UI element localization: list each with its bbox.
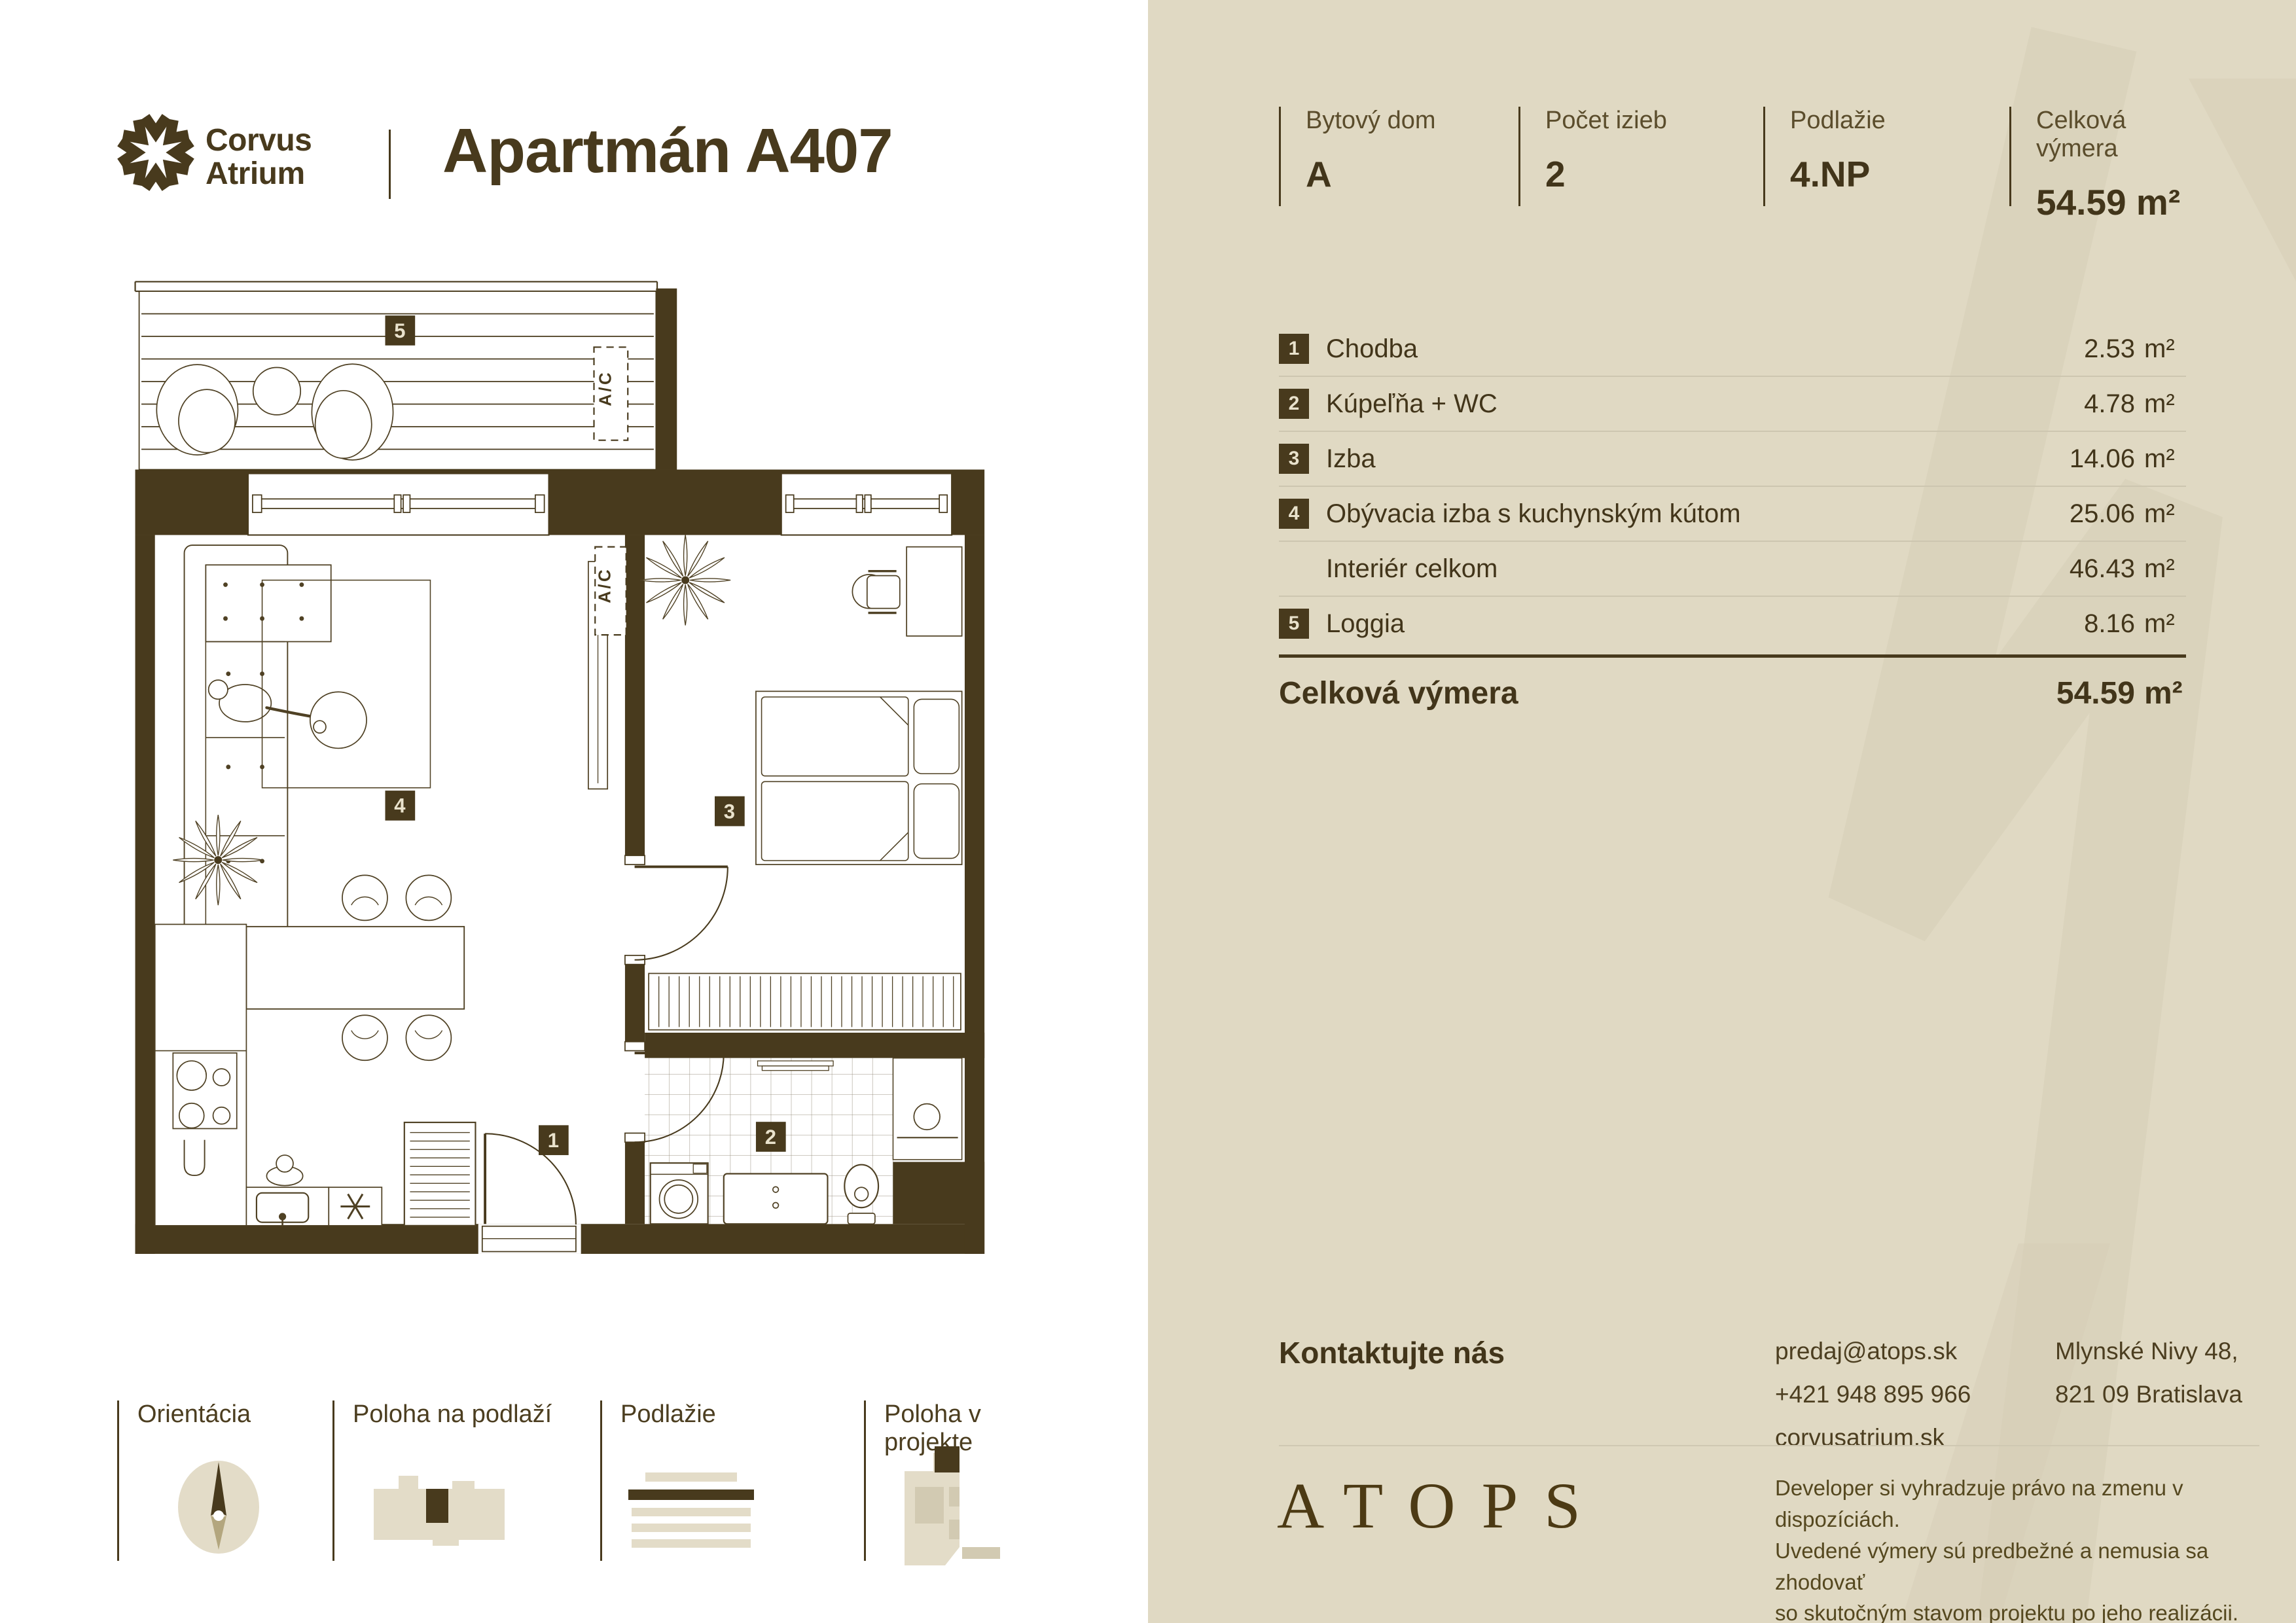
contact-website: corvusatrium.sk — [1775, 1416, 1971, 1459]
disclaimer-line: so skutočným stavom projektu po jeho rea… — [1775, 1597, 2272, 1623]
total-unit: m² — [2144, 675, 2186, 711]
contact-details: predaj@atops.sk +421 948 895 966 corvusa… — [1775, 1330, 1971, 1459]
badge-number: 1 — [548, 1129, 559, 1152]
badge-number: 3 — [724, 800, 735, 823]
contact-phone: +421 948 895 966 — [1775, 1373, 1971, 1416]
floor-plan: A/C — [121, 262, 1001, 1283]
vanity-cabinet — [724, 1174, 828, 1224]
compass-icon — [171, 1452, 266, 1556]
shaft — [893, 1162, 984, 1224]
room-unit: m² — [2144, 609, 2186, 639]
disclaimer-line: Developer si vyhradzuje právo na zmenu v… — [1775, 1472, 2272, 1535]
summary-floor: Podlažie 4.NP — [1763, 107, 2009, 206]
room-unit: m² — [2144, 444, 2186, 474]
total-label: Celková výmera — [1279, 675, 1518, 711]
table-row-interior-total: Interiér celkom 46.43 m² — [1279, 542, 2186, 596]
table-total-row: Celková výmera 54.59 m² — [1279, 658, 2186, 728]
room-number-badge: 5 — [1279, 609, 1309, 639]
person-at-sink — [266, 1155, 302, 1186]
room-label: Chodba — [1326, 334, 1418, 364]
kitchen-counter — [155, 924, 247, 1225]
badge-number: 5 — [394, 319, 405, 342]
room-badge-4: 4 — [386, 791, 416, 821]
legend-label: Poloha na podlaží — [353, 1400, 594, 1429]
atops-logo: ATOPS — [1277, 1468, 1607, 1543]
room-label: Interiér celkom — [1326, 554, 1498, 584]
project-position-icon — [895, 1441, 1003, 1572]
disclaimer-line: Uvedené výmery sú predbežné a nemusia sa… — [1775, 1535, 2272, 1598]
living-room-window — [248, 474, 549, 535]
summary-building: Bytový dom A — [1279, 107, 1518, 206]
ac-label: A/C — [596, 370, 615, 406]
room-area: 25.06 — [2070, 499, 2135, 529]
brochure-page: Corvus Atrium Apartmán A407 — [0, 0, 2296, 1623]
address-line1: Mlynské Nivy 48, — [2055, 1330, 2242, 1373]
room-number-badge: 1 — [1279, 334, 1309, 364]
contact-heading: Kontaktujte nás — [1279, 1335, 1505, 1370]
summary-value: 2 — [1545, 153, 1763, 195]
legend-position-on-floor: Poloha na podlaží — [332, 1400, 594, 1561]
room-badge-2: 2 — [756, 1122, 786, 1152]
double-bed — [756, 691, 962, 865]
brand-separator — [389, 130, 391, 199]
plant-bedroom — [640, 535, 730, 626]
summary-label: Celková výmera — [2036, 107, 2186, 163]
contact-email: predaj@atops.sk — [1775, 1330, 1971, 1373]
room-badge-1: 1 — [539, 1125, 569, 1155]
summary-label: Bytový dom — [1306, 107, 1518, 135]
room-number-badge: 2 — [1279, 389, 1309, 419]
room-unit: m² — [2144, 389, 2186, 419]
summary-value: A — [1306, 153, 1518, 195]
room-number-badge: 4 — [1279, 499, 1309, 529]
info-panel: Bytový dom A Počet izieb 2 Podlažie 4.NP… — [1148, 0, 2296, 1623]
brand-line2: Atrium — [206, 158, 312, 191]
summary-label: Podlažie — [1790, 107, 2009, 135]
table-row: 2 Kúpeľňa + WC 4.78 m² — [1279, 377, 2186, 431]
legend-floor: Podlažie — [600, 1400, 859, 1561]
bar-stools-top — [342, 875, 451, 920]
hallway-closet — [404, 1122, 476, 1226]
brand-line1: Corvus — [206, 124, 312, 158]
page-title: Apartmán A407 — [442, 115, 893, 187]
interior-ac-unit: A/C — [595, 547, 626, 635]
footer-divider — [1279, 1445, 2259, 1446]
summary-value: 54.59 m² — [2036, 181, 2186, 223]
loggia-right-wall — [656, 289, 677, 470]
table-row: 5 Loggia 8.16 m² — [1279, 597, 2186, 651]
room-number-badge: 3 — [1279, 444, 1309, 474]
summary-rooms: Počet izieb 2 — [1518, 107, 1763, 206]
room-area: 8.16 — [2084, 609, 2135, 639]
room-label: Kúpeľňa + WC — [1326, 389, 1498, 419]
room-badge-5: 5 — [386, 315, 416, 346]
room-area: 4.78 — [2084, 389, 2135, 419]
contact-address: Mlynské Nivy 48, 821 09 Bratislava — [2055, 1330, 2242, 1416]
ac-label: A/C — [596, 567, 615, 603]
coffee-table — [310, 692, 367, 748]
toilet — [844, 1165, 878, 1224]
room-area-table: 1 Chodba 2.53 m² 2 Kúpeľňa + WC 4.78 m² … — [1279, 322, 2186, 728]
room-area: 2.53 — [2084, 334, 2135, 364]
disclaimer-text: Developer si vyhradzuje právo na zmenu v… — [1775, 1472, 2272, 1623]
total-area: 54.59 — [2056, 675, 2135, 711]
dining-table — [246, 927, 464, 1009]
summary-header: Bytový dom A Počet izieb 2 Podlažie 4.NP… — [1279, 107, 2186, 206]
legend-orientation: Orientácia — [117, 1400, 327, 1561]
room-area: 14.06 — [2070, 444, 2135, 474]
badge-number: 4 — [394, 794, 406, 817]
dishwasher — [329, 1187, 382, 1226]
bedroom-wardrobe — [649, 973, 961, 1029]
loggia-ac-unit: A/C — [594, 347, 628, 440]
summary-value: 4.NP — [1790, 153, 2009, 195]
table-row: 3 Izba 14.06 m² — [1279, 432, 2186, 486]
bedroom-window — [778, 471, 954, 535]
room-unit: m² — [2144, 499, 2186, 529]
bedroom-door — [625, 855, 728, 964]
room-unit: m² — [2144, 554, 2186, 584]
summary-total-area: Celková výmera 54.59 m² — [2009, 107, 2186, 206]
legend-label: Orientácia — [137, 1400, 327, 1429]
bar-stools-bottom — [342, 1015, 451, 1060]
address-line2: 821 09 Bratislava — [2055, 1373, 2242, 1416]
legend-label: Podlažie — [620, 1400, 859, 1429]
room-label: Loggia — [1326, 609, 1405, 639]
summary-label: Počet izieb — [1545, 107, 1763, 135]
corvus-atrium-logo-icon — [117, 113, 195, 192]
washing-machine — [651, 1163, 708, 1224]
room-number-badge-empty — [1279, 554, 1309, 584]
kitchen-sink — [246, 1187, 329, 1226]
room-badge-3: 3 — [715, 796, 745, 827]
sofa — [185, 545, 331, 935]
brand-name: Corvus Atrium — [206, 124, 312, 191]
table-row: 4 Obývacia izba s kuchynským kútom 25.06… — [1279, 487, 2186, 541]
desk-and-chair — [852, 547, 961, 636]
room-area: 46.43 — [2070, 554, 2135, 584]
floor-position-icon — [370, 1466, 508, 1551]
floor-level-icon — [628, 1472, 756, 1554]
room-label: Izba — [1326, 444, 1376, 474]
badge-number: 2 — [765, 1126, 776, 1149]
legend-position-in-project: Poloha v projekte — [864, 1400, 1021, 1561]
room-label: Obývacia izba s kuchynským kútom — [1326, 499, 1741, 529]
room-unit: m² — [2144, 334, 2186, 364]
table-row: 1 Chodba 2.53 m² — [1279, 322, 2186, 376]
